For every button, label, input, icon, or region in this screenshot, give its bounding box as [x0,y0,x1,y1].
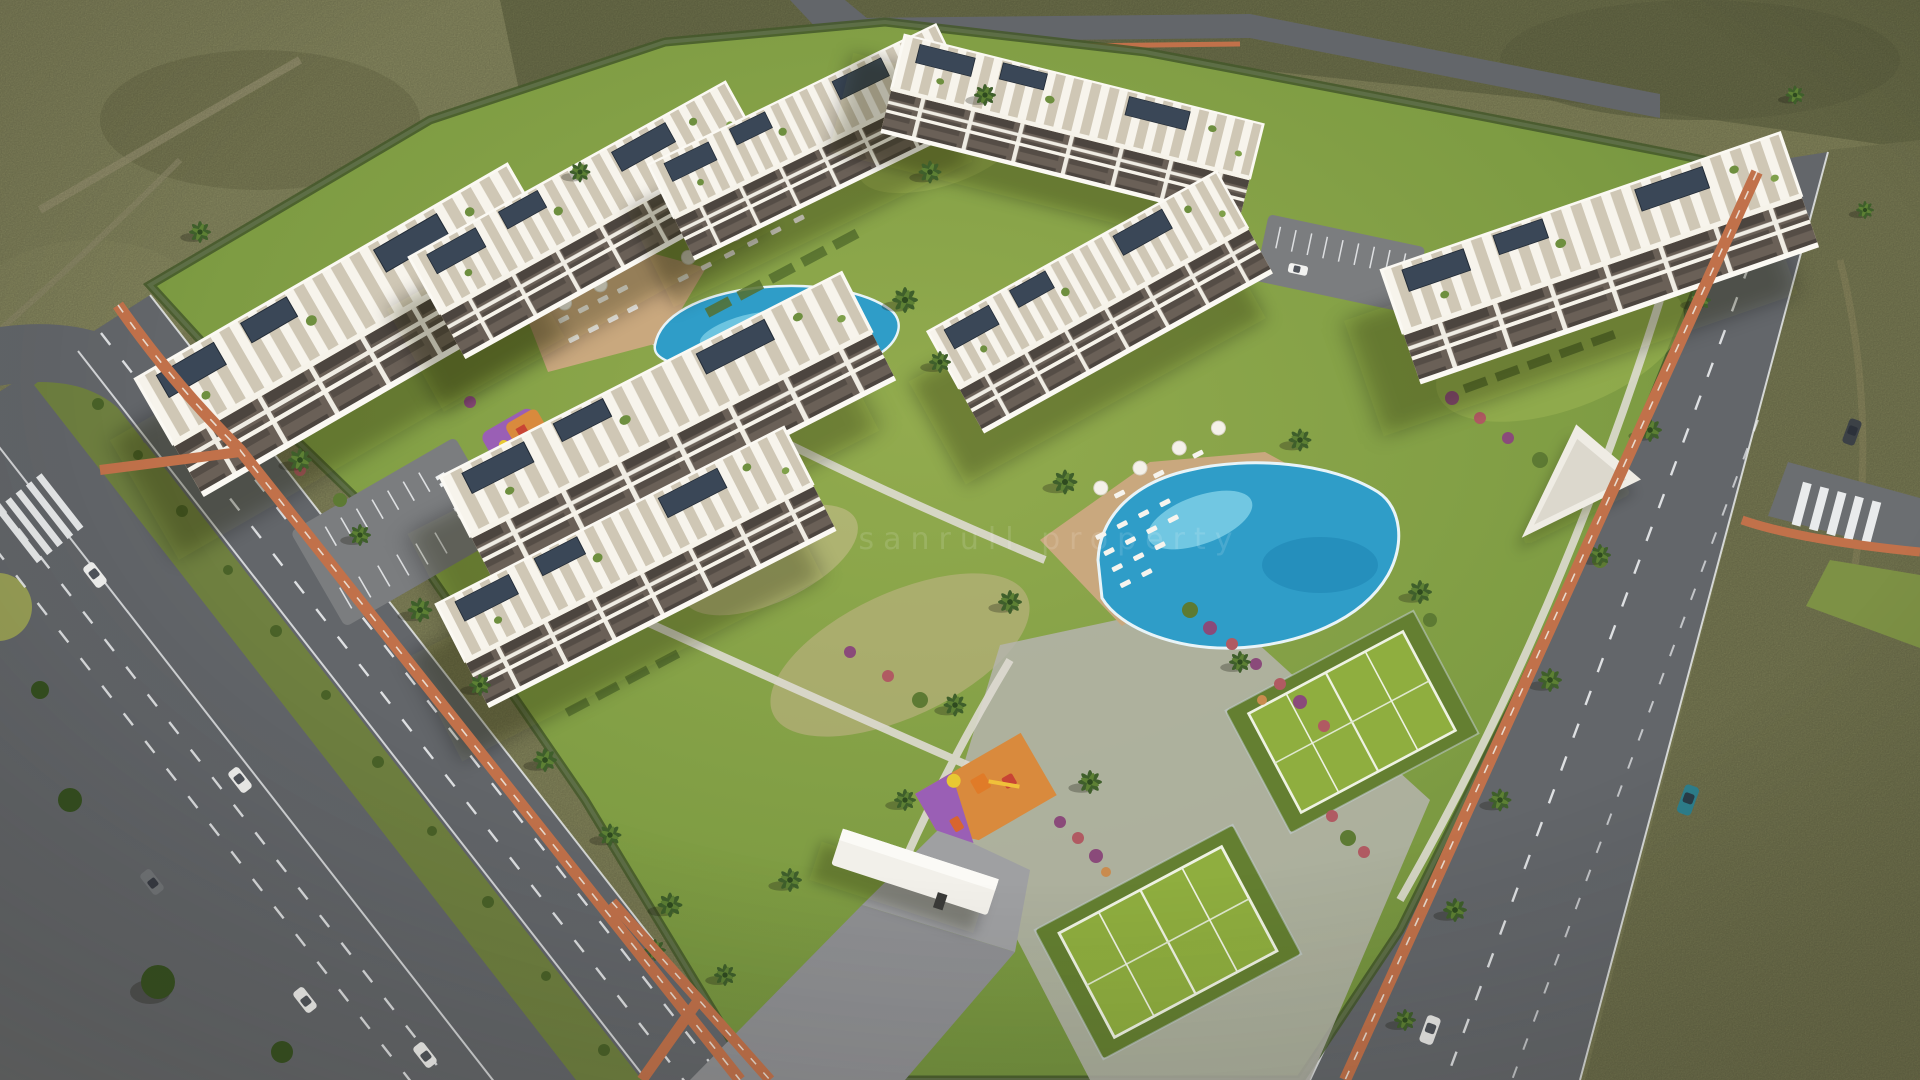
aerial-render: sanrull property [0,0,1920,1080]
scene-canvas [0,0,1920,1080]
vignette [0,0,1920,1080]
